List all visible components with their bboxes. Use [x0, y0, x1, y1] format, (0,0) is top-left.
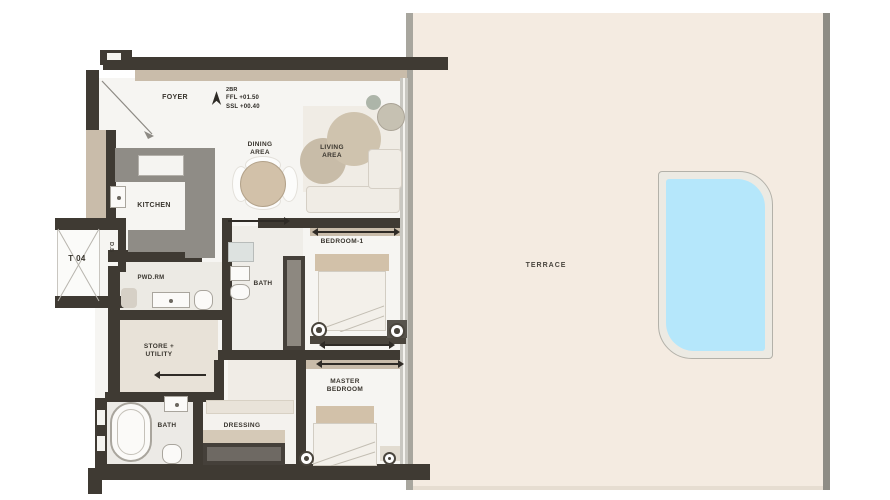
left-shaft — [86, 130, 106, 225]
powder-label: PWD.RM — [126, 275, 176, 283]
ssl-label: SSL +00.40 — [226, 103, 260, 111]
bedrooms-mid-wall — [218, 350, 408, 360]
dressing-master-wall — [296, 360, 306, 464]
powder-toilet — [194, 290, 213, 310]
floor-plan-canvas: TERRACE — [0, 0, 890, 500]
master-bath-sink — [164, 396, 188, 412]
sofa-seat — [306, 186, 400, 213]
door-swing-icon — [96, 78, 166, 144]
window-span-arrow-icon — [318, 231, 394, 233]
master-headboard — [316, 406, 374, 423]
terrace-bottom-edge — [413, 486, 823, 490]
dressing-wardrobe-interior — [207, 447, 281, 461]
db-label: D.B — [100, 228, 114, 266]
left-wall-bath — [95, 398, 107, 468]
left-wall-mid — [108, 266, 120, 398]
top-wall — [103, 57, 448, 70]
unit-type-label: 2BR — [226, 87, 260, 94]
master-bedroom-label: MASTER BEDROOM — [314, 378, 376, 395]
window-span-arrow-icon — [322, 363, 398, 365]
kitchen-appliance — [110, 186, 126, 208]
bath-window-2 — [97, 436, 105, 451]
foyer-label: FOYER — [150, 93, 200, 102]
master-lamp-left — [299, 451, 314, 466]
master-sink-drain — [175, 403, 179, 407]
door-direction-arrow-icon — [228, 220, 284, 222]
bottom-wall — [100, 464, 430, 480]
powder-chair — [121, 288, 137, 308]
store-label: STORE + UTILITY — [128, 343, 190, 360]
dining-label: DINING AREA — [232, 141, 288, 158]
bath1-shower — [228, 242, 254, 262]
kitchen-counter-bottom — [128, 230, 215, 252]
terrace-label: TERRACE — [510, 261, 582, 270]
dining-table — [240, 161, 286, 207]
terrace-right-border — [823, 13, 830, 490]
ffl-label: FFL +01.50 — [226, 94, 260, 102]
lift-shaft-cross-icon — [57, 228, 100, 302]
master-bath-toilet — [162, 444, 182, 464]
plant-small — [366, 95, 381, 110]
powder-store-wall — [108, 310, 222, 320]
powder-sink-drain — [169, 299, 173, 303]
appliance-knob — [117, 196, 121, 200]
dressing-label: DRESSING — [212, 422, 272, 430]
kitchen-island — [138, 155, 184, 176]
bedroom1-label: BEDROOM-1 — [310, 238, 374, 246]
master-bath-label: BATH — [148, 422, 186, 430]
closet-vert-wall — [214, 360, 224, 402]
dressing-closet-floor — [228, 360, 296, 400]
north-arrow-icon — [210, 90, 223, 107]
bedside-lamp-right — [389, 323, 405, 339]
top-wall-accent — [135, 70, 407, 81]
plant-large — [377, 103, 405, 131]
bath-window-1 — [97, 410, 105, 425]
pool-water — [666, 179, 765, 351]
level-annotation-text: 2BR FFL +01.50 SSL +00.40 — [226, 87, 260, 111]
bedside-lamp-left — [311, 322, 327, 338]
bedroom1-headboard — [315, 254, 389, 271]
db-right-wall — [118, 218, 126, 272]
dressing-shelf — [206, 400, 294, 414]
living-label: LIVING AREA — [304, 144, 360, 161]
window-span-arrow-icon — [325, 344, 389, 346]
wardrobe-bedroom1-interior — [287, 260, 301, 346]
dressing-counter-band — [203, 430, 285, 443]
kitchen-label: KITCHEN — [128, 201, 180, 210]
bathtub — [110, 402, 152, 462]
store-bottom-wall — [105, 392, 218, 402]
bath1-label: BATH — [244, 280, 282, 288]
sofa-chaise — [368, 149, 402, 189]
bath-dressing-wall — [193, 402, 203, 464]
door-direction-arrow-icon — [160, 374, 206, 376]
lift-t04-label: T 04 — [56, 254, 98, 264]
bed1-fold-line — [318, 300, 386, 332]
bottom-wall-foot — [88, 468, 102, 494]
right-window-glass — [403, 78, 405, 464]
bath1-sink — [230, 266, 250, 281]
top-left-wall-window — [107, 53, 121, 60]
master-lamp-right — [383, 452, 396, 465]
level-annotation: 2BR FFL +01.50 SSL +00.40 — [210, 87, 260, 111]
master-bed-fold-line — [313, 440, 377, 466]
powder-counter — [152, 292, 190, 308]
corridor-vert-wall — [222, 218, 232, 352]
